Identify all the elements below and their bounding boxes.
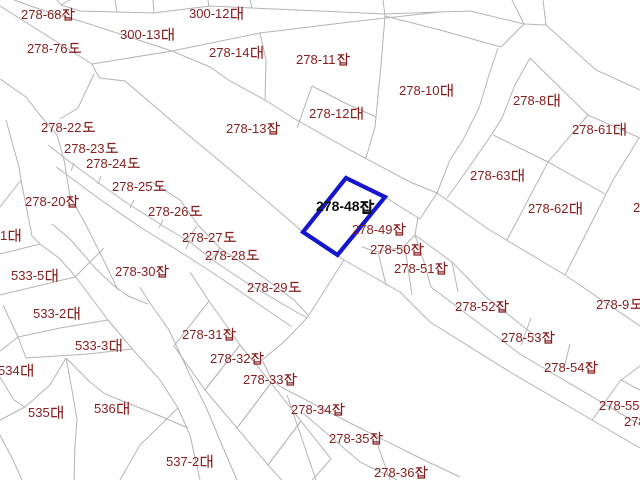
svg-text:278-61: 278-61 [572,122,612,137]
svg-text:278-20: 278-20 [25,194,65,209]
svg-text:278-50: 278-50 [370,242,410,257]
svg-text:278-62: 278-62 [528,201,568,216]
svg-text:278-49: 278-49 [352,222,392,237]
svg-text:533-3: 533-3 [75,338,108,353]
svg-text:278-55: 278-55 [599,398,639,413]
svg-text:278-30: 278-30 [115,264,155,279]
svg-text:278-10: 278-10 [399,83,439,98]
svg-text:278-25: 278-25 [112,179,152,194]
svg-text:278-29: 278-29 [247,280,287,295]
svg-text:278-76: 278-76 [27,41,67,56]
svg-text:278-: 278- [624,414,640,429]
svg-text:537-2: 537-2 [166,454,199,469]
svg-text:278-23: 278-23 [64,141,104,156]
svg-text:534: 534 [0,363,20,378]
svg-text:278-48: 278-48 [316,198,360,214]
svg-text:278-51: 278-51 [394,261,434,276]
svg-text:535: 535 [28,405,50,420]
svg-text:278-27: 278-27 [182,230,222,245]
svg-text:278-24: 278-24 [86,156,126,171]
svg-text:278-35: 278-35 [329,431,369,446]
svg-text:278-63: 278-63 [470,168,510,183]
svg-text:278-12: 278-12 [309,106,349,121]
svg-text:1: 1 [0,228,7,243]
svg-text:278-54: 278-54 [544,360,584,375]
svg-text:300-13: 300-13 [120,27,160,42]
svg-text:278-22: 278-22 [41,120,81,135]
svg-text:278: 278 [633,200,640,215]
svg-text:278-53: 278-53 [501,330,541,345]
svg-text:278-8: 278-8 [513,93,546,108]
svg-text:278-13: 278-13 [226,121,266,136]
svg-text:278-32: 278-32 [210,351,250,366]
svg-text:536: 536 [94,401,116,416]
svg-text:278-26: 278-26 [148,204,188,219]
svg-text:278-36: 278-36 [374,465,414,480]
svg-text:278-52: 278-52 [455,299,495,314]
svg-text:278-34: 278-34 [291,402,331,417]
svg-text:278-31: 278-31 [182,327,222,342]
svg-text:533-2: 533-2 [33,306,66,321]
svg-text:278-33: 278-33 [243,372,283,387]
svg-text:300-12: 300-12 [189,6,229,21]
svg-text:533-5: 533-5 [11,268,44,283]
svg-text:278-11: 278-11 [296,52,336,67]
svg-text:278-68: 278-68 [21,7,61,22]
svg-text:278-28: 278-28 [205,248,245,263]
svg-text:278-14: 278-14 [209,45,249,60]
svg-text:278-9: 278-9 [596,297,629,312]
